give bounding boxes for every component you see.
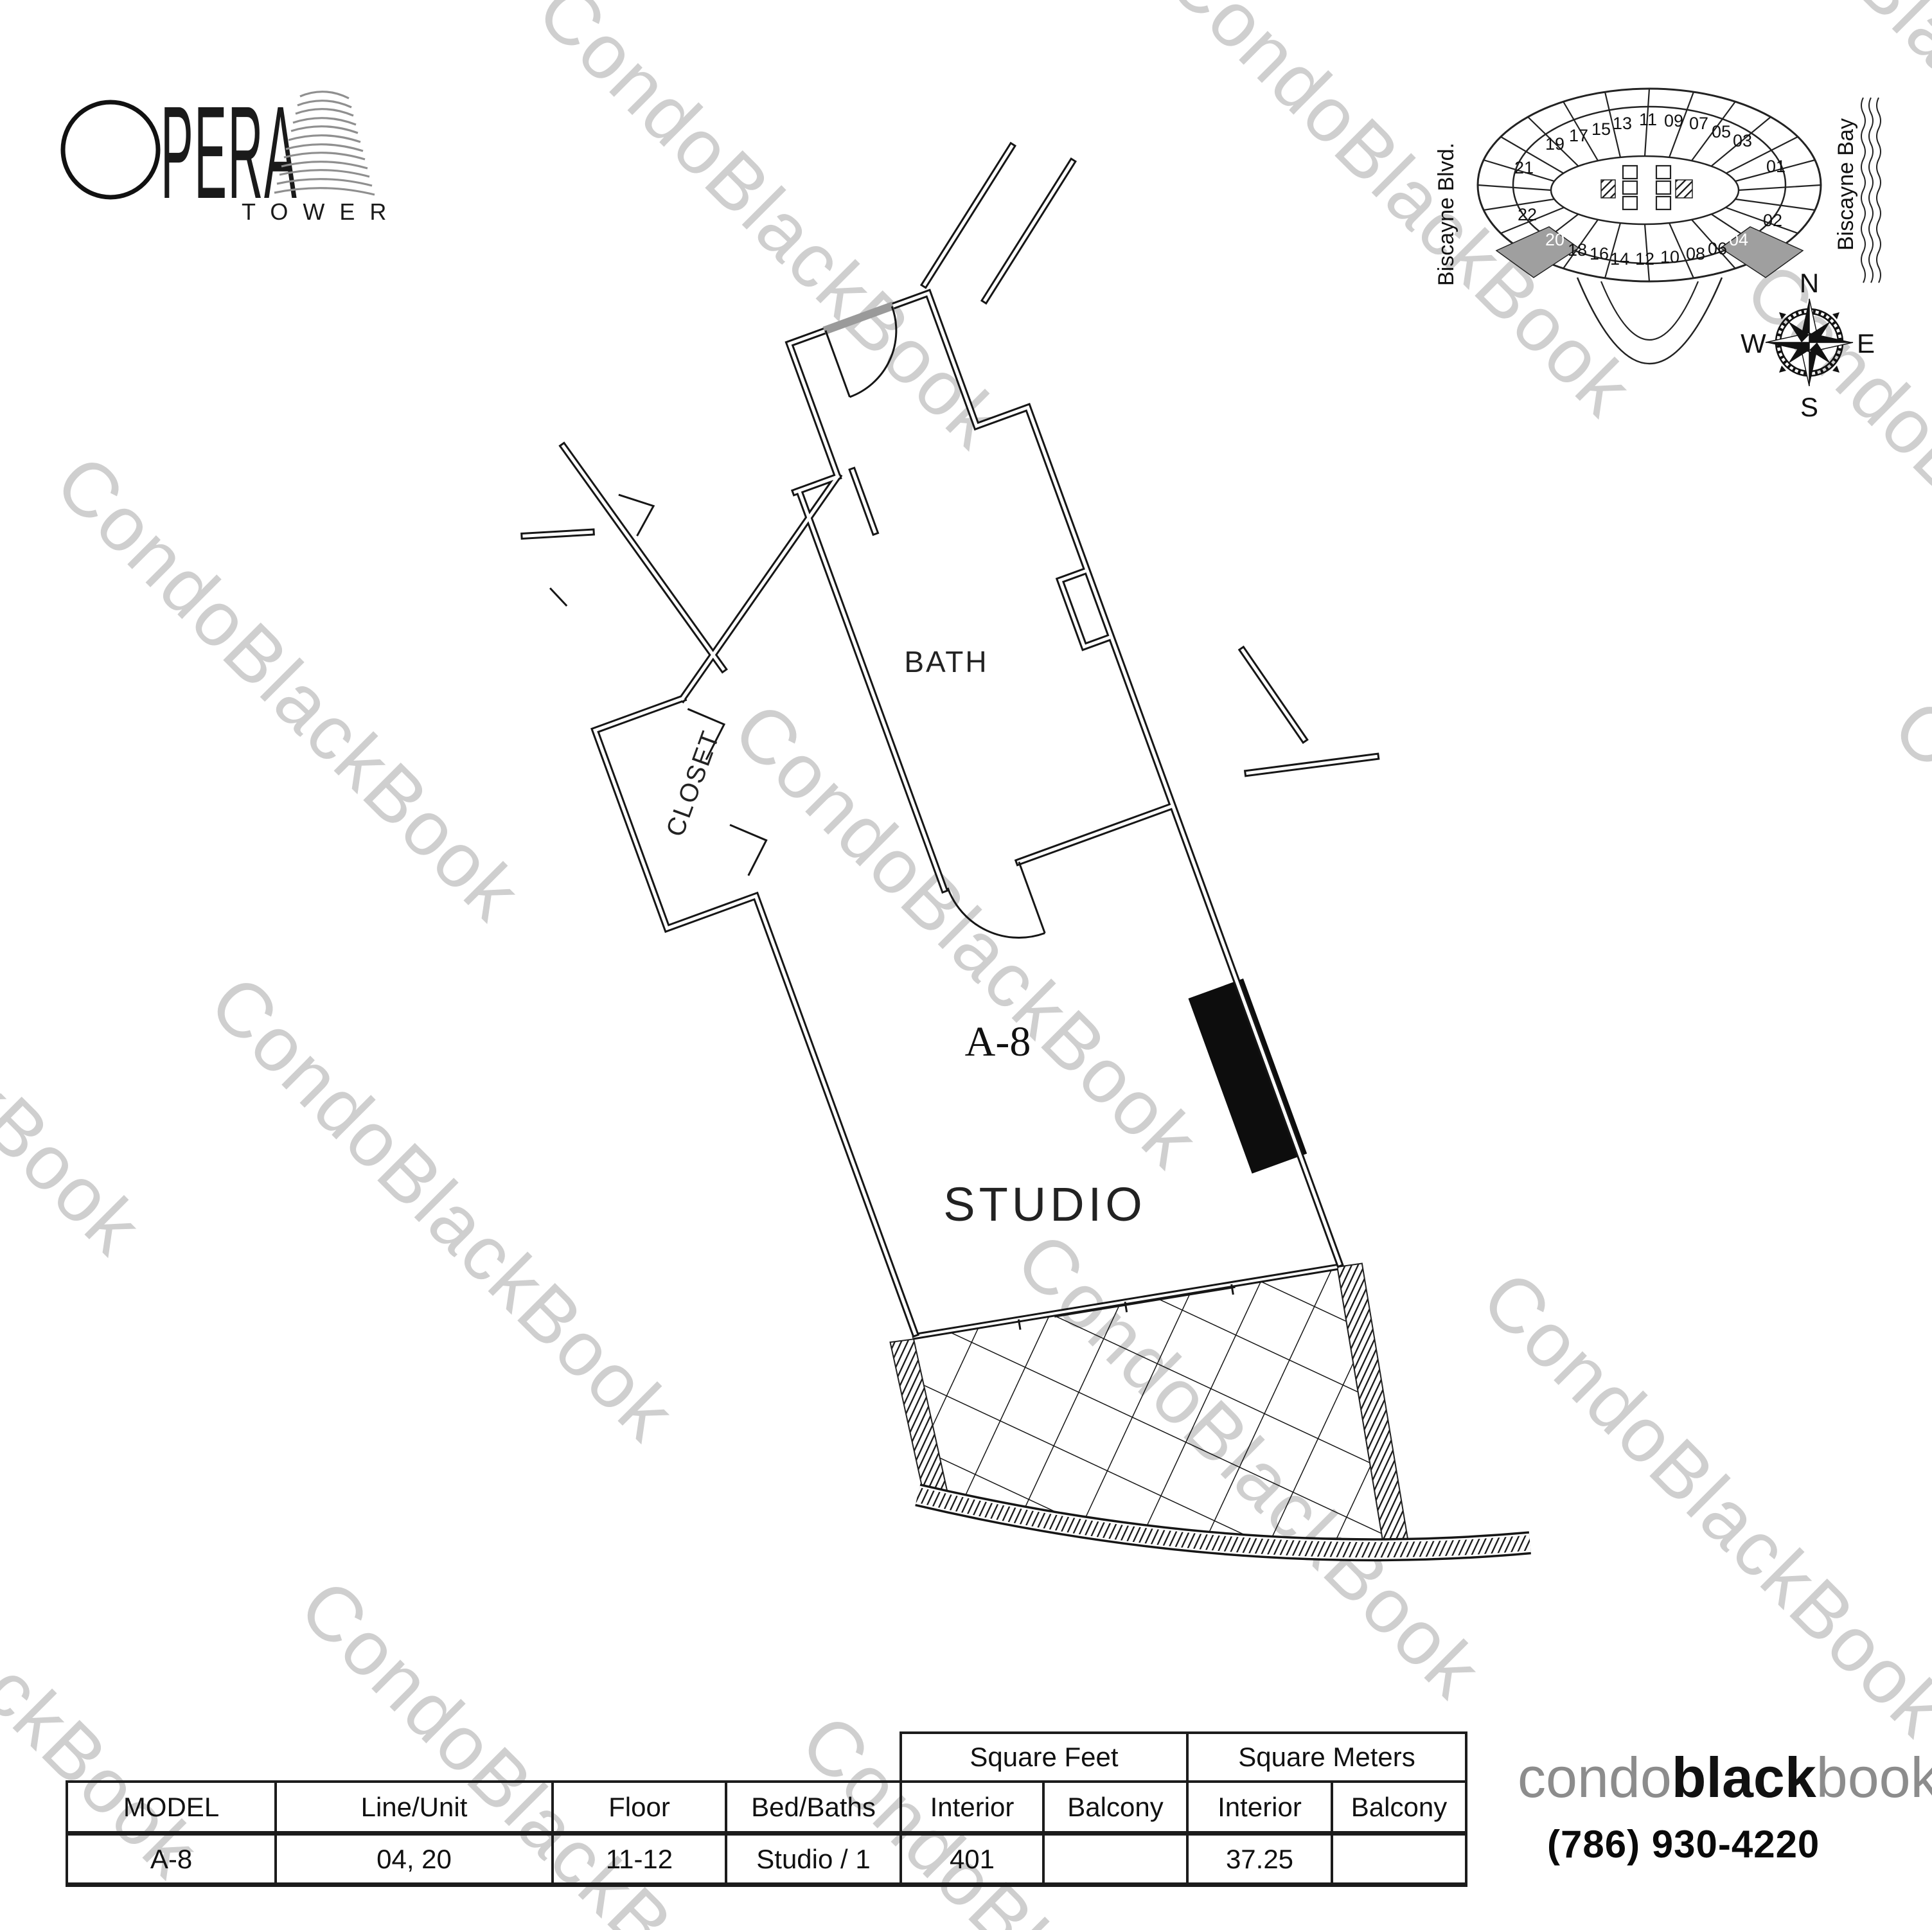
site-unit-number: 05	[1712, 122, 1731, 141]
watermark-text: CondoBlackBook	[193, 959, 691, 1457]
condoblackbook-logo: condoblackbook	[1518, 1745, 1932, 1810]
watermark-text: CondoBlackBook	[0, 773, 159, 1271]
stairs-icon	[1676, 180, 1692, 198]
col-header-sqm-balcony: Balcony	[1332, 1782, 1466, 1834]
site-unit-number: 12	[1635, 249, 1654, 269]
table-section-sqm: Square Meters	[1187, 1733, 1466, 1782]
spec-table: Square Feet Square Meters MODEL Line/Uni…	[66, 1731, 1467, 1887]
cell-floor: 11-12	[553, 1834, 726, 1885]
watermark-text: CondoBlackBook	[1729, 246, 1932, 744]
room-label-bath: BATH	[904, 645, 988, 678]
col-header-sqm-interior: Interior	[1187, 1782, 1332, 1834]
stairs-icon	[1601, 180, 1615, 198]
building-core	[1551, 156, 1739, 224]
cell-line-unit: 04, 20	[276, 1834, 553, 1885]
watermark-text: CondoBlackBook	[1877, 683, 1932, 1181]
compass-north-label: N	[1800, 268, 1819, 298]
cell-sqm-interior: 37.25	[1187, 1834, 1332, 1885]
site-unit-number-highlighted: 20	[1545, 230, 1564, 249]
site-unit-number: 08	[1686, 244, 1705, 263]
watermarks: CondoBlackBook CondoBlackBook CondoBlack…	[0, 0, 1932, 1930]
cell-bed-baths: Studio / 1	[726, 1834, 901, 1885]
compass-west-label: W	[1741, 328, 1766, 359]
table-section-sqft: Square Feet	[901, 1733, 1187, 1782]
phone-number: (786) 930-4220	[1547, 1822, 1820, 1866]
bay-label: Biscayne Bay	[1834, 118, 1858, 251]
cell-sqm-balcony	[1332, 1834, 1466, 1885]
site-unit-number-highlighted: 04	[1729, 230, 1748, 249]
opera-o-icon	[63, 102, 158, 197]
elevator-bank-icon	[1623, 166, 1671, 209]
site-unit-number: 06	[1708, 239, 1727, 258]
room-label-closet: CLOSET	[661, 727, 725, 840]
site-unit-number: 15	[1591, 120, 1611, 139]
site-unit-number: 14	[1610, 249, 1629, 269]
table-row: A-8 04, 20 11-12 Studio / 1 401 37.25	[67, 1834, 1466, 1885]
site-unit-number: 21	[1514, 158, 1534, 177]
compass-east-label: E	[1857, 328, 1875, 359]
table-spacer	[67, 1733, 901, 1782]
watermark-text: CondoBlackBook	[521, 0, 1019, 465]
cell-sqft-balcony	[1043, 1834, 1187, 1885]
col-header-line-unit: Line/Unit	[276, 1782, 553, 1834]
unit-model-label: A-8	[965, 1018, 1031, 1065]
compass-south-label: S	[1800, 392, 1818, 422]
water-waves-icon	[1861, 98, 1881, 283]
watermark-text: CondoBlackBook	[717, 686, 1215, 1184]
unit-type-label: STUDIO	[943, 1178, 1146, 1231]
site-unit-number: 01	[1766, 157, 1786, 176]
cell-sqft-interior: 401	[901, 1834, 1043, 1885]
tower-label: TOWER	[242, 199, 401, 225]
site-unit-number: 10	[1660, 247, 1679, 267]
col-header-bed-baths: Bed/Baths	[726, 1782, 901, 1834]
floor-plan-drawing	[456, 101, 1647, 1748]
col-header-sqft-balcony: Balcony	[1043, 1782, 1187, 1834]
walls	[456, 101, 1534, 1440]
opera-tower-logo: PERA TOWER	[63, 78, 401, 226]
site-unit-number: 19	[1545, 134, 1564, 154]
watermark-text: CondoBlackBook	[39, 439, 537, 937]
col-header-floor: Floor	[553, 1782, 726, 1834]
sheet-drawing: CondoBlackBook CondoBlackBook CondoBlack…	[0, 0, 1932, 1930]
logo-part-black: black	[1672, 1746, 1816, 1809]
watermark-text: CondoBlackBook	[1466, 1255, 1932, 1753]
logo-part-condo: condo	[1518, 1746, 1672, 1809]
site-unit-number: 11	[1639, 110, 1657, 129]
site-unit-number: 13	[1613, 114, 1632, 133]
col-header-model: MODEL	[67, 1782, 276, 1834]
site-unit-number: 18	[1568, 240, 1587, 260]
site-unit-number: 16	[1590, 244, 1609, 263]
site-unit-number: 02	[1763, 211, 1782, 230]
porte-cochere-inner	[1601, 281, 1698, 340]
site-unit-number: 07	[1689, 114, 1708, 133]
logo-part-book: book	[1816, 1746, 1932, 1809]
site-unit-number: 22	[1518, 205, 1537, 224]
site-unit-number: 09	[1664, 111, 1683, 130]
cell-model: A-8	[67, 1834, 276, 1885]
site-unit-number: 03	[1733, 131, 1752, 150]
col-header-sqft-interior: Interior	[901, 1782, 1043, 1834]
site-unit-number: 17	[1569, 126, 1588, 145]
floor-plan-sheet: CondoBlackBook CondoBlackBook CondoBlack…	[0, 0, 1932, 1930]
street-label: Biscayne Blvd.	[1434, 143, 1458, 286]
